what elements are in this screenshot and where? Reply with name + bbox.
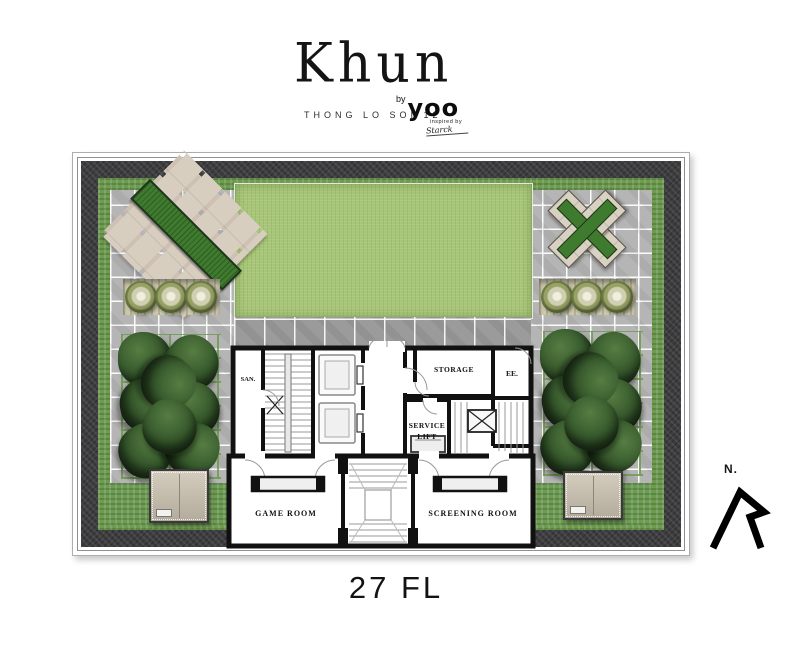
- floor-number-label: 27 FL: [0, 570, 792, 606]
- label-san: SAN.: [241, 376, 256, 383]
- shrub: [601, 281, 633, 313]
- floor-plan: SAN. STORAGE EE. SERVICE LIFT GAME ROOM …: [72, 152, 690, 556]
- north-label: N.: [724, 462, 738, 476]
- daybed-left: [149, 469, 209, 523]
- studio-tagline: inspired by: [430, 119, 506, 125]
- north-arrow-icon: [708, 482, 778, 554]
- pillow: [570, 506, 586, 514]
- label-service-lift-2: LIFT: [417, 432, 437, 441]
- label-game-room: GAME ROOM: [255, 509, 317, 518]
- pillow: [156, 509, 172, 517]
- label-ee: EE.: [506, 369, 518, 378]
- label-storage: STORAGE: [434, 365, 474, 374]
- media-console-game: [252, 477, 324, 491]
- green-planter-bar: [130, 179, 242, 291]
- daybed-right: [563, 471, 623, 520]
- daybed-seam: [179, 474, 180, 518]
- label-service-lift-1: SERVICE: [409, 421, 446, 430]
- shrub: [185, 281, 217, 313]
- shrub: [541, 281, 573, 313]
- brand-header: Khun THONG LO SOI 12 byyoo inspired by S…: [280, 34, 520, 130]
- tree-grove-right: [543, 331, 643, 476]
- shrub-planter-left: [123, 279, 220, 315]
- shrub: [155, 281, 187, 313]
- central-lawn: [234, 183, 533, 319]
- by-label: by: [396, 94, 406, 104]
- tree-grove-left: [121, 334, 221, 479]
- studio-logo: byyoo inspired by Starck: [396, 94, 506, 135]
- label-screening-room: SCREENING ROOM: [428, 509, 517, 518]
- media-console-screening: [434, 477, 506, 491]
- daybed-seam: [593, 476, 594, 515]
- compass: N.: [702, 462, 788, 562]
- floorplan-brochure-page: { "brand": { "name": "Khun", "location":…: [0, 0, 792, 647]
- studio-signature: Starck: [426, 124, 469, 137]
- shrub-planter-right: [539, 279, 636, 315]
- core-upper-shell: [233, 348, 531, 458]
- x-shaped-planter: [544, 186, 628, 270]
- studio-name: yoo: [408, 94, 460, 122]
- shrub: [571, 281, 603, 313]
- building-core: SAN. STORAGE EE. SERVICE LIFT GAME ROOM …: [219, 338, 539, 553]
- brand-name: Khun: [294, 33, 453, 95]
- shrub: [125, 281, 157, 313]
